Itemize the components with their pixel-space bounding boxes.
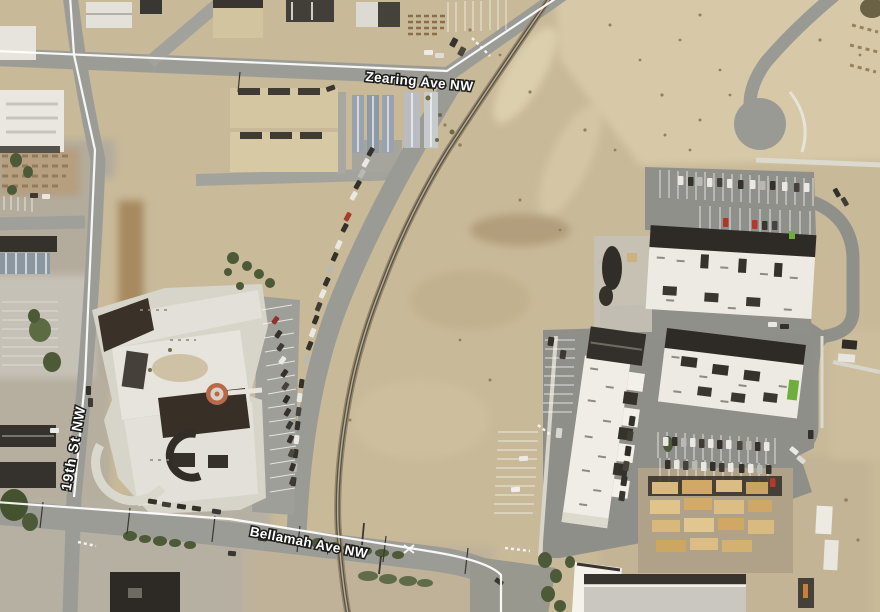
b1-shade-tree bbox=[602, 246, 622, 290]
b1-green-unit bbox=[789, 231, 795, 239]
b1-west-pad bbox=[594, 236, 652, 332]
pallet-stack bbox=[627, 253, 637, 262]
road-residential-lane bbox=[196, 174, 402, 180]
b1-shade-tree-2 bbox=[599, 286, 613, 306]
loop-road-bulb bbox=[734, 98, 786, 150]
road-west-side bbox=[0, 222, 85, 224]
apartment-building-north bbox=[646, 225, 817, 319]
satellite-map-canvas[interactable]: Zearing Ave NW Bellamah Ave NW 19th St N… bbox=[0, 0, 880, 612]
